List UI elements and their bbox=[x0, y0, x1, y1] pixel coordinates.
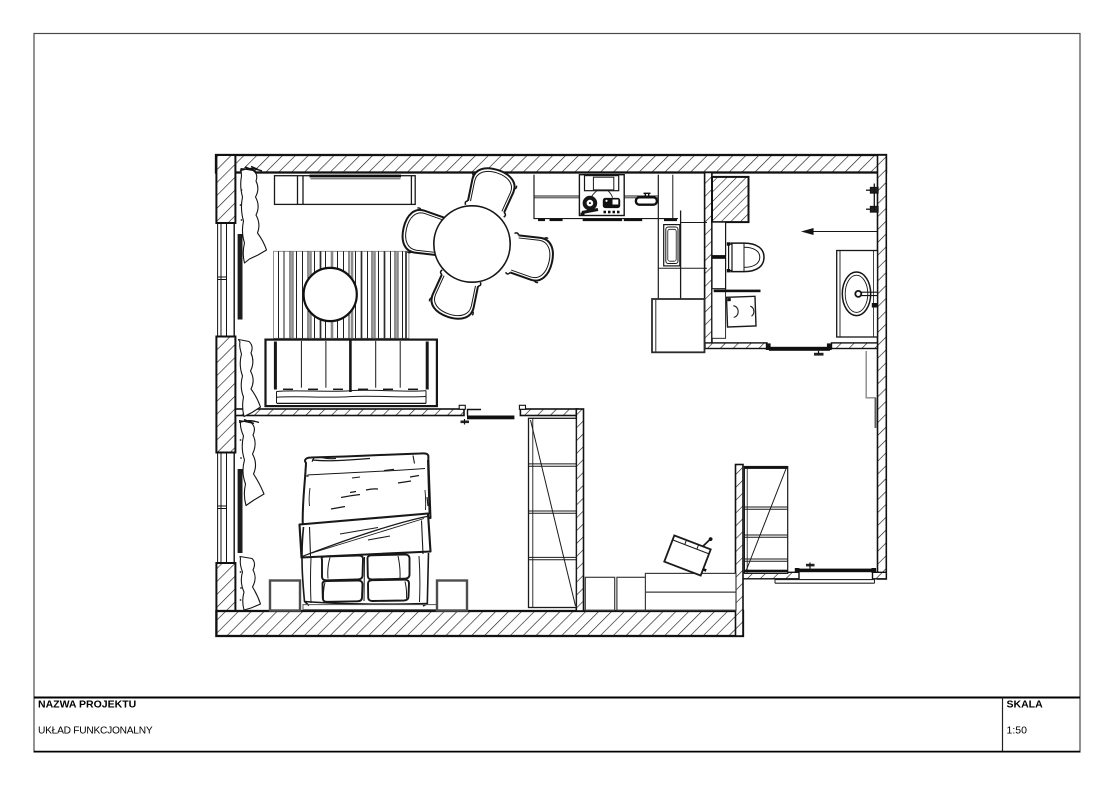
svg-text:NAZWA PROJEKTU: NAZWA PROJEKTU bbox=[38, 699, 136, 711]
svg-text:SKALA: SKALA bbox=[1007, 699, 1044, 711]
svg-text:1:50: 1:50 bbox=[1007, 725, 1028, 737]
svg-text:UKŁAD FUNKCJONALNY: UKŁAD FUNKCJONALNY bbox=[38, 726, 153, 737]
